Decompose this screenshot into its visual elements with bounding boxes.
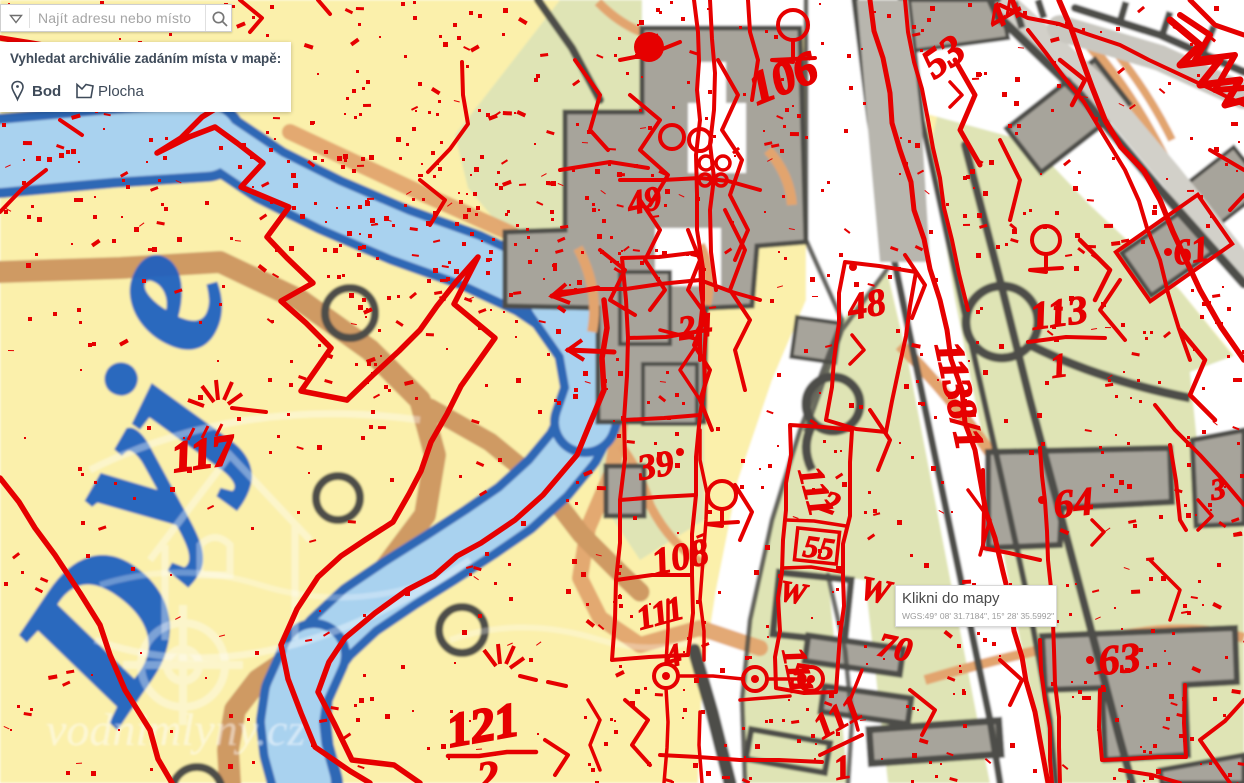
svg-text:39: 39 <box>633 442 676 488</box>
svg-text:113: 113 <box>1027 286 1090 339</box>
svg-text:61: 61 <box>1171 228 1212 273</box>
svg-text:64: 64 <box>1051 478 1095 527</box>
svg-text:48: 48 <box>843 281 889 329</box>
svg-text:63: 63 <box>1096 635 1143 685</box>
svg-text:2: 2 <box>474 751 501 783</box>
svg-text:vodnimlyny.cz: vodnimlyny.cz <box>46 704 305 755</box>
